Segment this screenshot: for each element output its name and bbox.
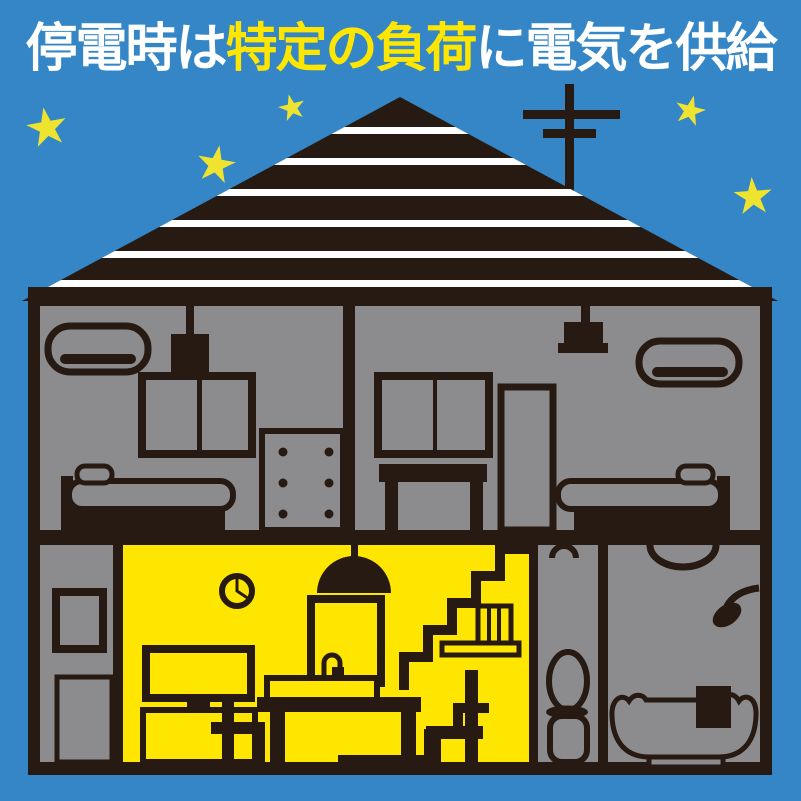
toilet-bowl	[550, 716, 587, 762]
towel	[696, 686, 731, 728]
headline-part-1: 停電時は	[25, 6, 225, 81]
house-cutaway-scene	[0, 0, 801, 801]
books	[478, 606, 511, 644]
pillow	[678, 466, 713, 483]
shelf-board	[442, 643, 519, 655]
pillow	[77, 466, 112, 483]
dresser	[262, 431, 343, 530]
antenna-crossbar-long	[523, 110, 620, 119]
kitchen-sink	[311, 599, 381, 683]
toilet-lid	[549, 652, 587, 710]
entrance-hall-furniture	[56, 592, 112, 762]
air-conditioner	[48, 326, 148, 372]
power-outage-illustration: 停電時は特定の負荷に電気を供給	[0, 0, 801, 801]
wall-clock	[222, 576, 252, 606]
antenna-crossbar-short	[543, 129, 596, 138]
wardrobe-door	[501, 387, 553, 530]
picture-frame	[56, 592, 103, 649]
tv-board	[143, 710, 255, 762]
window	[374, 372, 493, 458]
window	[138, 372, 256, 458]
headline: 停電時は特定の負荷に電気を供給	[0, 10, 801, 76]
tv-screen	[150, 653, 247, 694]
entrance-door	[57, 677, 112, 762]
bathtub	[612, 686, 756, 767]
headline-part-2-highlight: 特定の負荷	[225, 6, 475, 81]
air-conditioner	[639, 341, 739, 384]
headline-part-3: に電気を供給	[476, 6, 776, 81]
